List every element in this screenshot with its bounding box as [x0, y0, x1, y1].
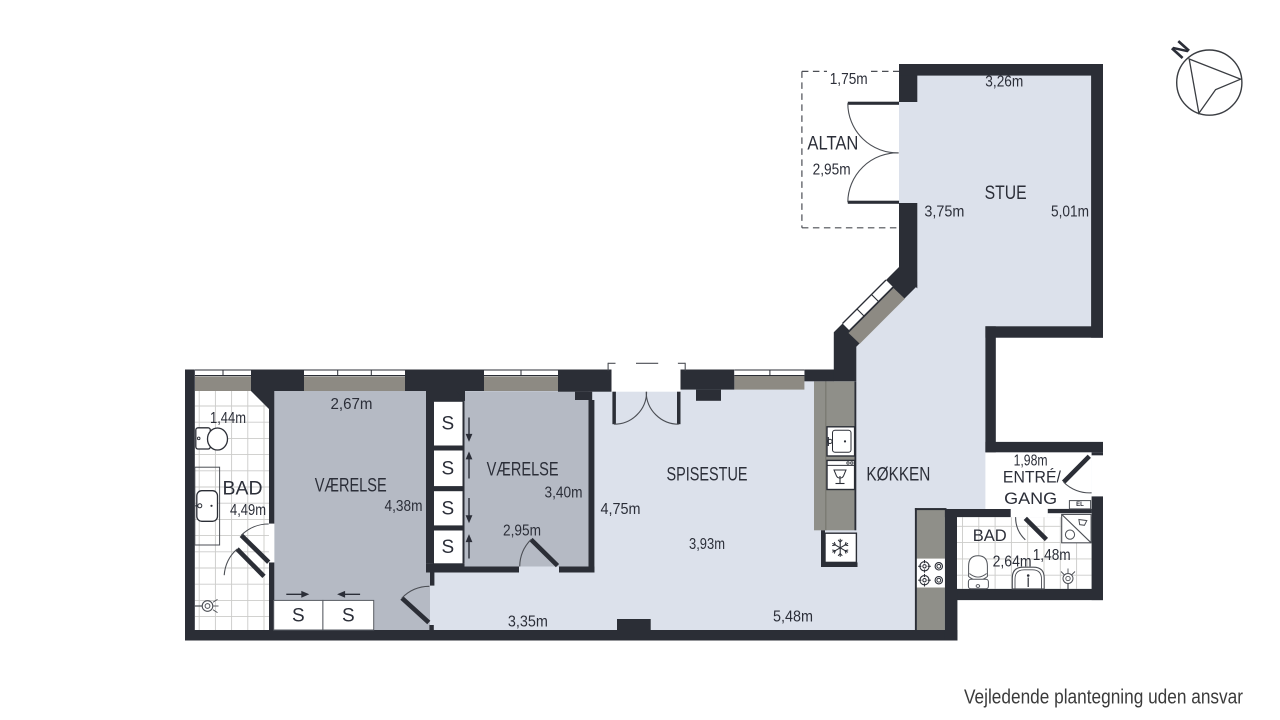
svg-text:S: S [441, 414, 454, 435]
svg-text:5,48m: 5,48m [773, 609, 813, 626]
svg-text:5,01m: 5,01m [1051, 204, 1089, 221]
svg-text:ALTAN: ALTAN [807, 134, 858, 155]
svg-text:GANG: GANG [1004, 489, 1057, 508]
svg-text:3,40m: 3,40m [545, 485, 583, 502]
svg-text:STUE: STUE [985, 183, 1027, 204]
svg-text:VÆRELSE: VÆRELSE [487, 460, 559, 481]
svg-text:VÆRELSE: VÆRELSE [315, 475, 387, 496]
svg-text:3,35m: 3,35m [508, 613, 548, 630]
svg-text:SPISESTUE: SPISESTUE [667, 465, 748, 486]
svg-text:S: S [292, 606, 305, 627]
svg-text:2,95m: 2,95m [813, 161, 851, 178]
svg-text:Vejledende plantegning uden an: Vejledende plantegning uden ansvar [964, 686, 1243, 708]
svg-text:1,44m: 1,44m [210, 410, 246, 427]
svg-text:3,26m: 3,26m [985, 74, 1023, 91]
svg-text:3,93m: 3,93m [689, 536, 725, 553]
svg-text:4,38m: 4,38m [385, 498, 423, 515]
svg-text:2,95m: 2,95m [503, 522, 541, 539]
svg-text:1,48m: 1,48m [1033, 547, 1071, 564]
svg-text:KØKKEN: KØKKEN [866, 465, 930, 486]
svg-text:EL: EL [1076, 502, 1084, 508]
svg-text:4,75m: 4,75m [601, 501, 641, 518]
svg-text:BAD: BAD [973, 526, 1007, 545]
svg-text:S: S [441, 458, 454, 479]
svg-text:2,64m: 2,64m [993, 553, 1032, 570]
svg-text:ENTRÉ/: ENTRÉ/ [1003, 467, 1061, 486]
svg-text:1,75m: 1,75m [830, 71, 868, 88]
svg-text:S: S [441, 498, 454, 519]
svg-text:3,75m: 3,75m [924, 204, 964, 221]
svg-text:4,49m: 4,49m [230, 502, 266, 519]
svg-text:BAD: BAD [223, 478, 263, 499]
svg-text:S: S [342, 606, 355, 627]
svg-text:2,67m: 2,67m [331, 396, 373, 413]
svg-text:S: S [441, 537, 454, 558]
